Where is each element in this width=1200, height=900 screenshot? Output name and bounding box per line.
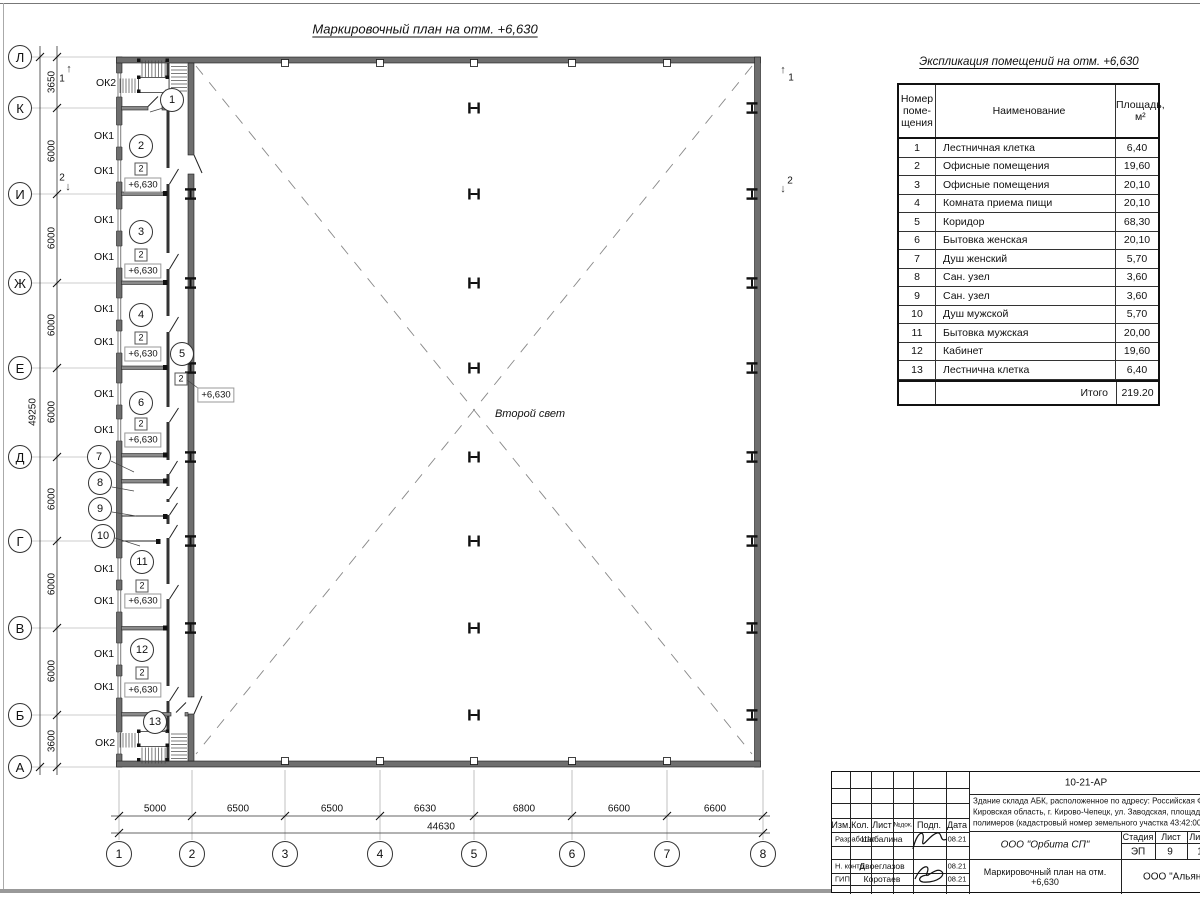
table-row: 5Коридор68,30 [899, 213, 1158, 232]
document-code: 10-21-АР [1065, 778, 1107, 789]
dim-bottom: 6800 [513, 804, 535, 815]
room-number-cell: 6 [899, 232, 936, 250]
sheet-value: 9 [1167, 847, 1173, 858]
second-light-label: Второй свет [495, 408, 565, 420]
room-name-cell: Лестничная клетка [936, 139, 1116, 157]
titleblock-line [1187, 831, 1188, 859]
table-row: 7Душ женский5,70 [899, 250, 1158, 269]
window-mark-ok1: ОК1 [94, 336, 114, 348]
room-number-bubble: 11 [130, 550, 154, 574]
room-name-cell: Комната приема пищи [936, 195, 1116, 213]
floor-type-mark: 2 [175, 373, 188, 386]
section-mark-2: 2 [787, 176, 793, 187]
table-row: 11Бытовка мужская20,00 [899, 324, 1158, 343]
dim-left: 6000 [47, 401, 58, 423]
level-mark: +6,630 [124, 433, 161, 448]
table-row: 9Сан. узел3,60 [899, 287, 1158, 306]
floor-type-mark: 2 [135, 163, 148, 176]
stage-label: Стадия [1123, 832, 1154, 842]
dim-left: 6000 [47, 227, 58, 249]
room-name-cell: Офисные помещения [936, 176, 1116, 194]
table-row: 13Лестнична клетка6,40 [899, 361, 1158, 380]
room-number-cell: 5 [899, 213, 936, 231]
grid-col-bubble: 7 [654, 841, 680, 867]
dim-left: 3650 [47, 71, 58, 93]
room-area-cell: 6,40 [1116, 139, 1158, 157]
section-arrow-icon: ↑ [66, 63, 72, 75]
table-row: 6Бытовка женская20,10 [899, 232, 1158, 251]
drawing-sheet: { "plan": { "title": "Маркировочный план… [0, 0, 1200, 900]
table-header-cell: Номер поме- щения [899, 85, 936, 137]
total-empty-cell [899, 382, 936, 404]
section-arrow-icon: ↑ [780, 64, 786, 76]
level-mark: +6,630 [124, 683, 161, 698]
room-number-bubble: 3 [129, 220, 153, 244]
sheet-frame-left [3, 3, 4, 889]
dim-left: 6000 [47, 488, 58, 510]
titleblock-name: Коротаев [864, 874, 901, 884]
section-arrow-icon: ↓ [65, 181, 71, 193]
room-number-cell: 12 [899, 343, 936, 361]
room-number-cell: 11 [899, 324, 936, 342]
window-mark-ok1: ОК1 [94, 648, 114, 660]
room-area-cell: 3,60 [1116, 269, 1158, 287]
dim-left: 6000 [47, 140, 58, 162]
floor-type-mark: 2 [135, 418, 148, 431]
sheet-label: Лист [1161, 832, 1181, 842]
grid-row-bubble: Б [8, 703, 32, 727]
room-number-cell: 2 [899, 158, 936, 176]
room-number-bubble: 9 [88, 497, 112, 521]
section-mark-1: 1 [788, 73, 794, 84]
titleblock-line [1121, 843, 1200, 844]
window-mark-ok1: ОК1 [94, 681, 114, 693]
room-number-cell: 7 [899, 250, 936, 268]
level-mark: +6,630 [124, 594, 161, 609]
table-total-row: Итого219.20 [899, 380, 1158, 404]
room-name-cell: Бытовка мужская [936, 324, 1116, 342]
window-mark-ok1: ОК1 [94, 130, 114, 142]
table-title: Экспликация помещений на отм. +6,630 [919, 56, 1138, 68]
titleblock-role: ГИП [835, 875, 850, 884]
room-name-cell: Кабинет [936, 343, 1116, 361]
table-row: 3Офисные помещения20,10 [899, 176, 1158, 195]
signature-scribbles [909, 827, 951, 889]
titleblock-line [832, 818, 969, 819]
dim-left-total: 49250 [28, 398, 39, 426]
grid-row-bubble: Г [8, 529, 32, 553]
grid-col-bubble: 4 [367, 841, 393, 867]
room-area-cell: 3,60 [1116, 287, 1158, 305]
level-mark: +6,630 [124, 347, 161, 362]
grid-row-bubble: Д [8, 445, 32, 469]
grid-row-bubble: В [8, 616, 32, 640]
stage-value: ЭП [1131, 847, 1145, 858]
grid-col-bubble: 8 [750, 841, 776, 867]
room-number-cell: 4 [899, 195, 936, 213]
titleblock-line [969, 772, 970, 894]
company-name: ООО "Альянс [1143, 872, 1200, 883]
project-description: полимеров (кадастровый номер земельного … [973, 819, 1200, 828]
dim-left: 3600 [47, 730, 58, 752]
window-mark-ok2: ОК2 [96, 77, 116, 89]
room-area-cell: 68,30 [1116, 213, 1158, 231]
project-description: Здание склада АБК, расположенное по адре… [973, 797, 1200, 806]
window-mark-ok1: ОК1 [94, 595, 114, 607]
titleblock-col-header: Изм. [831, 820, 850, 830]
window-mark-ok1: ОК1 [94, 251, 114, 263]
room-name-cell: Сан. узел [936, 287, 1116, 305]
room-number-bubble: 5 [170, 342, 194, 366]
room-name-cell: Коридор [936, 213, 1116, 231]
floor-type-mark: 2 [135, 249, 148, 262]
grid-col-bubble: 2 [179, 841, 205, 867]
titleblock-line [850, 772, 851, 894]
room-area-cell: 5,70 [1116, 250, 1158, 268]
grid-col-bubble: 3 [272, 841, 298, 867]
room-area-cell: 6,40 [1116, 361, 1158, 379]
titleblock-line [1155, 831, 1156, 859]
titleblock-line [969, 859, 1200, 860]
titleblock-line [832, 803, 969, 804]
room-number-bubble: 1 [160, 88, 184, 112]
sheets-label: Листов [1189, 832, 1200, 842]
sheet-frame-top [0, 3, 1200, 4]
dim-bottom: 6630 [414, 804, 436, 815]
room-area-cell: 20,00 [1116, 324, 1158, 342]
titleblock-col-header: Кол. [851, 820, 869, 830]
doc-title: Маркировочный план на отм. +6,630 [984, 867, 1106, 887]
dim-left: 6000 [47, 660, 58, 682]
grid-row-bubble: Ж [8, 271, 32, 295]
grid-row-bubble: И [8, 182, 32, 206]
room-area-cell: 20,10 [1116, 232, 1158, 250]
section-mark-1: 1 [59, 74, 65, 85]
window-mark-ok1: ОК1 [94, 303, 114, 315]
table-row: 4Комната приема пищи20,10 [899, 195, 1158, 214]
room-area-cell: 20,10 [1116, 176, 1158, 194]
titleblock-line [832, 788, 969, 789]
table-row: 8Сан. узел3,60 [899, 269, 1158, 288]
section-arrow-icon: ↓ [780, 183, 786, 195]
level-mark: +6,630 [197, 388, 234, 403]
org-name: ООО "Орбита СП" [1001, 840, 1090, 851]
floor-type-mark: 2 [136, 667, 149, 680]
title-block: Изм.Кол.Лист№док.Подп.ДатаРазработалШаба… [831, 771, 1200, 893]
room-area-cell: 19,60 [1116, 158, 1158, 176]
dim-left: 6000 [47, 314, 58, 336]
explication-table: Номер поме- щенияНаименованиеПлощадь, м²… [897, 83, 1160, 406]
room-area-cell: 5,70 [1116, 306, 1158, 324]
dim-bottom: 6500 [227, 804, 249, 815]
level-mark: +6,630 [124, 264, 161, 279]
table-row: 12Кабинет19,60 [899, 343, 1158, 362]
table-header-cell: Наименование [936, 85, 1116, 137]
titleblock-name: Шабалина [861, 834, 902, 844]
total-label: Итого [936, 382, 1117, 404]
dim-bottom: 5000 [144, 804, 166, 815]
grid-col-bubble: 6 [559, 841, 585, 867]
grid-col-bubble: 5 [461, 841, 487, 867]
room-number-cell: 3 [899, 176, 936, 194]
room-name-cell: Бытовка женская [936, 232, 1116, 250]
grid-row-bubble: А [8, 755, 32, 779]
plan-title: Маркировочный план на отм. +6,630 [312, 22, 537, 37]
room-number-cell: 8 [899, 269, 936, 287]
window-mark-ok1: ОК1 [94, 165, 114, 177]
room-number-cell: 10 [899, 306, 936, 324]
window-mark-ok1: ОК1 [94, 424, 114, 436]
window-mark-ok2: ОК2 [95, 737, 115, 749]
room-number-cell: 9 [899, 287, 936, 305]
window-mark-ok1: ОК1 [94, 388, 114, 400]
dim-bottom: 6600 [608, 804, 630, 815]
room-name-cell: Офисные помещения [936, 158, 1116, 176]
grid-row-bubble: К [8, 96, 32, 120]
room-name-cell: Лестнична клетка [936, 361, 1116, 379]
titleblock-col-header: Лист [872, 820, 892, 830]
level-mark: +6,630 [124, 178, 161, 193]
room-number-bubble: 2 [129, 134, 153, 158]
total-value: 219.20 [1117, 382, 1158, 404]
room-number-bubble: 8 [88, 471, 112, 495]
window-mark-ok1: ОК1 [94, 563, 114, 575]
section-mark-2: 2 [59, 173, 65, 184]
room-name-cell: Душ женский [936, 250, 1116, 268]
room-number-bubble: 7 [87, 445, 111, 469]
room-number-cell: 13 [899, 361, 936, 379]
room-name-cell: Душ мужской [936, 306, 1116, 324]
project-description: Кировская область, г. Кирово-Чепецк, ул.… [973, 808, 1200, 817]
room-number-bubble: 4 [129, 303, 153, 327]
dim-bottom-total: 44630 [427, 822, 455, 833]
grid-row-bubble: Л [8, 45, 32, 69]
floor-type-mark: 2 [136, 580, 149, 593]
floor-type-mark: 2 [135, 332, 148, 345]
dim-bottom: 6600 [704, 804, 726, 815]
room-number-bubble: 13 [143, 710, 167, 734]
table-row: 10Душ мужской5,70 [899, 306, 1158, 325]
dim-left: 6000 [47, 573, 58, 595]
dim-bottom: 6500 [321, 804, 343, 815]
table-row: 2Офисные помещения19,60 [899, 158, 1158, 177]
table-row: 1Лестничная клетка6,40 [899, 139, 1158, 158]
grid-row-bubble: Е [8, 356, 32, 380]
room-name-cell: Сан. узел [936, 269, 1116, 287]
titleblock-name: Двоеглазов [859, 861, 904, 871]
room-number-bubble: 12 [130, 638, 154, 662]
room-number-cell: 1 [899, 139, 936, 157]
room-area-cell: 19,60 [1116, 343, 1158, 361]
titleblock-line [969, 794, 1200, 795]
table-header-cell: Площадь, м² [1116, 85, 1165, 137]
grid-col-bubble: 1 [106, 841, 132, 867]
room-number-bubble: 10 [91, 524, 115, 548]
window-mark-ok1: ОК1 [94, 214, 114, 226]
room-number-bubble: 6 [129, 391, 153, 415]
room-area-cell: 20,10 [1116, 195, 1158, 213]
